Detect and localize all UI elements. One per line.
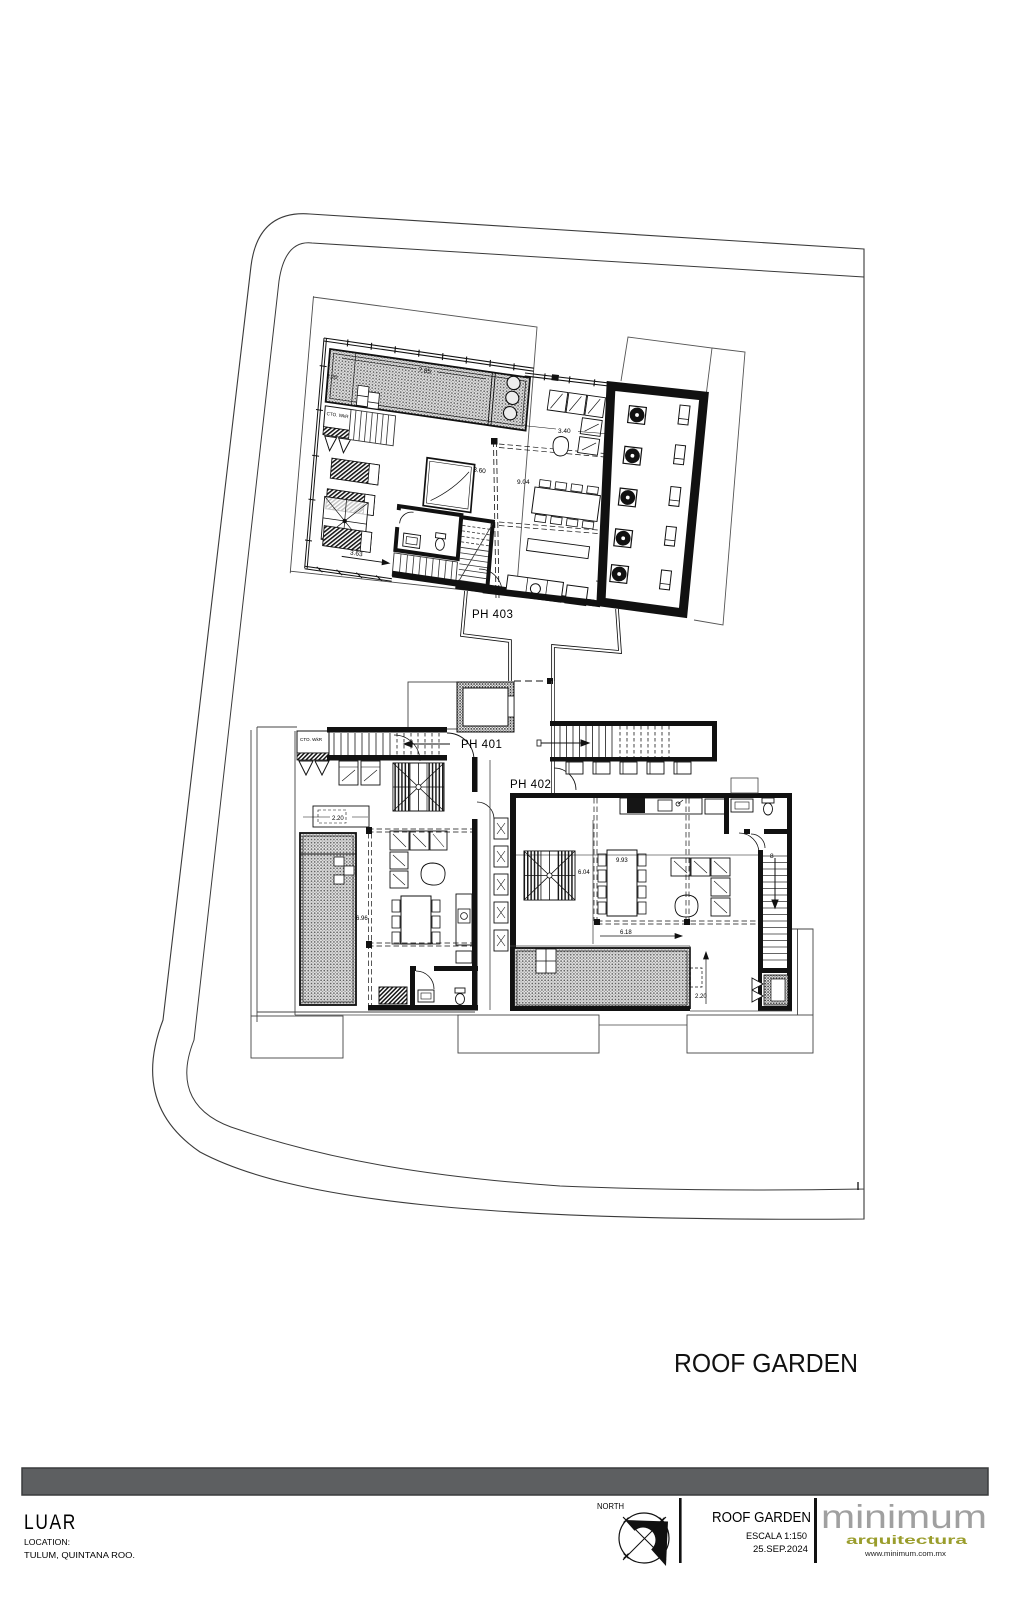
svg-text:25.SEP.2024: 25.SEP.2024: [753, 1544, 808, 1554]
svg-text:www.minimum.com.mx: www.minimum.com.mx: [864, 1549, 946, 1558]
svg-text:LOCATION:: LOCATION:: [24, 1537, 70, 1547]
svg-text:minimum: minimum: [821, 1498, 987, 1535]
svg-text:6.96: 6.96: [356, 916, 368, 922]
svg-text:3.40: 3.40: [558, 428, 571, 435]
svg-text:9.04: 9.04: [517, 479, 530, 486]
svg-text:2.20: 2.20: [695, 994, 707, 1000]
svg-text:PH 403: PH 403: [472, 609, 513, 621]
svg-text:TULUM, QUINTANA ROO.: TULUM, QUINTANA ROO.: [24, 1550, 135, 1560]
svg-text:6.04: 6.04: [578, 870, 590, 876]
svg-text:PH 402: PH 402: [510, 779, 551, 791]
svg-text:LUAR: LUAR: [24, 1511, 77, 1534]
svg-text:NORTH: NORTH: [597, 1502, 624, 1511]
svg-text:2.20: 2.20: [332, 816, 344, 822]
svg-text:9.93: 9.93: [616, 858, 628, 864]
svg-text:ESCALA 1:150: ESCALA 1:150: [746, 1531, 807, 1541]
svg-text:8: 8: [770, 853, 774, 860]
svg-text:6.18: 6.18: [620, 930, 632, 936]
svg-text:ROOF GARDEN: ROOF GARDEN: [674, 1348, 858, 1378]
svg-text:CTO. WkR: CTO. WkR: [300, 737, 323, 742]
svg-text:ROOF GARDEN: ROOF GARDEN: [712, 1509, 811, 1526]
svg-text:PH 401: PH 401: [461, 739, 502, 751]
svg-text:arquitectura: arquitectura: [846, 1535, 968, 1547]
